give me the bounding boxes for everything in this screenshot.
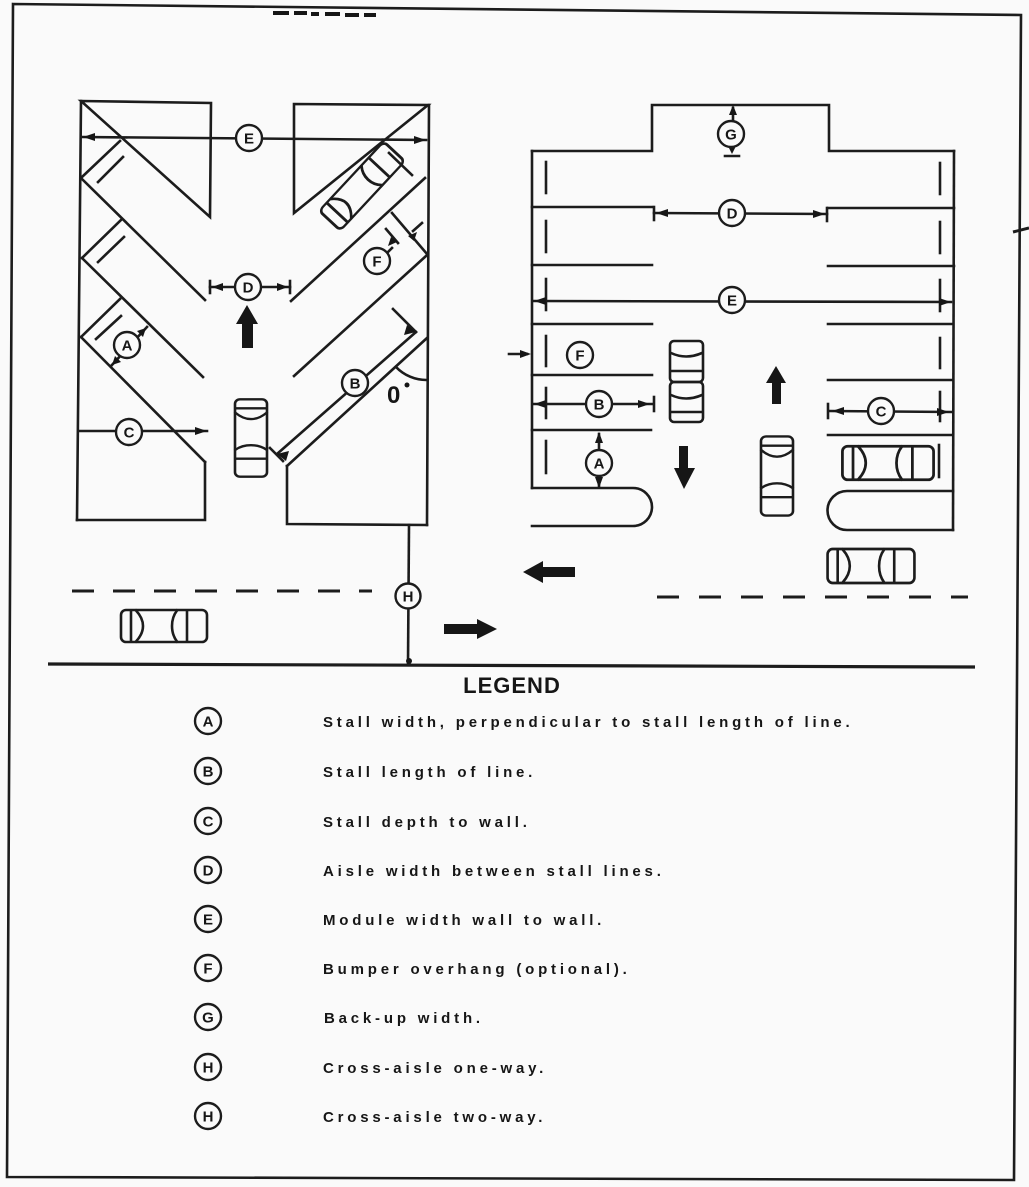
svg-text:F: F: [203, 961, 212, 978]
svg-text:G: G: [202, 1010, 214, 1027]
svg-text:Stall width, perpendicular to: Stall width, perpendicular to stall leng…: [323, 714, 854, 731]
svg-text:E: E: [244, 131, 254, 148]
svg-text:E: E: [727, 293, 737, 310]
svg-text:H: H: [203, 1060, 214, 1077]
svg-text:D: D: [727, 206, 738, 223]
svg-text:Aisle width between stall line: Aisle width between stall lines.: [323, 863, 665, 880]
svg-text:Bumper overhang (optional).: Bumper overhang (optional).: [323, 961, 631, 978]
svg-text:H: H: [403, 589, 414, 606]
svg-text:F: F: [575, 348, 584, 365]
svg-text:Module width wall to wall.: Module width wall to wall.: [323, 912, 605, 929]
svg-text:D: D: [203, 863, 214, 880]
svg-text:LEGEND: LEGEND: [463, 673, 561, 698]
svg-text:0: 0: [387, 382, 400, 409]
svg-text:A: A: [594, 456, 605, 473]
svg-text:C: C: [124, 425, 135, 442]
svg-text:F: F: [372, 254, 381, 271]
svg-text:B: B: [350, 376, 361, 393]
svg-text:A: A: [122, 338, 133, 355]
svg-text:B: B: [203, 764, 214, 781]
svg-text:Cross-aisle one-way.: Cross-aisle one-way.: [323, 1060, 547, 1077]
svg-text:D: D: [243, 280, 254, 297]
svg-text:G: G: [725, 127, 737, 144]
svg-text:C: C: [203, 814, 214, 831]
svg-text:Cross-aisle two-way.: Cross-aisle two-way.: [323, 1109, 546, 1126]
svg-text:Stall length of line.: Stall length of line.: [323, 764, 536, 781]
svg-text:B: B: [594, 397, 605, 414]
svg-text:C: C: [876, 404, 887, 421]
svg-text:Stall depth to wall.: Stall depth to wall.: [323, 814, 531, 831]
svg-text:A: A: [203, 714, 214, 731]
svg-text:Back-up width.: Back-up width.: [324, 1010, 484, 1027]
svg-text:H: H: [203, 1109, 214, 1126]
svg-text:E: E: [203, 912, 213, 929]
